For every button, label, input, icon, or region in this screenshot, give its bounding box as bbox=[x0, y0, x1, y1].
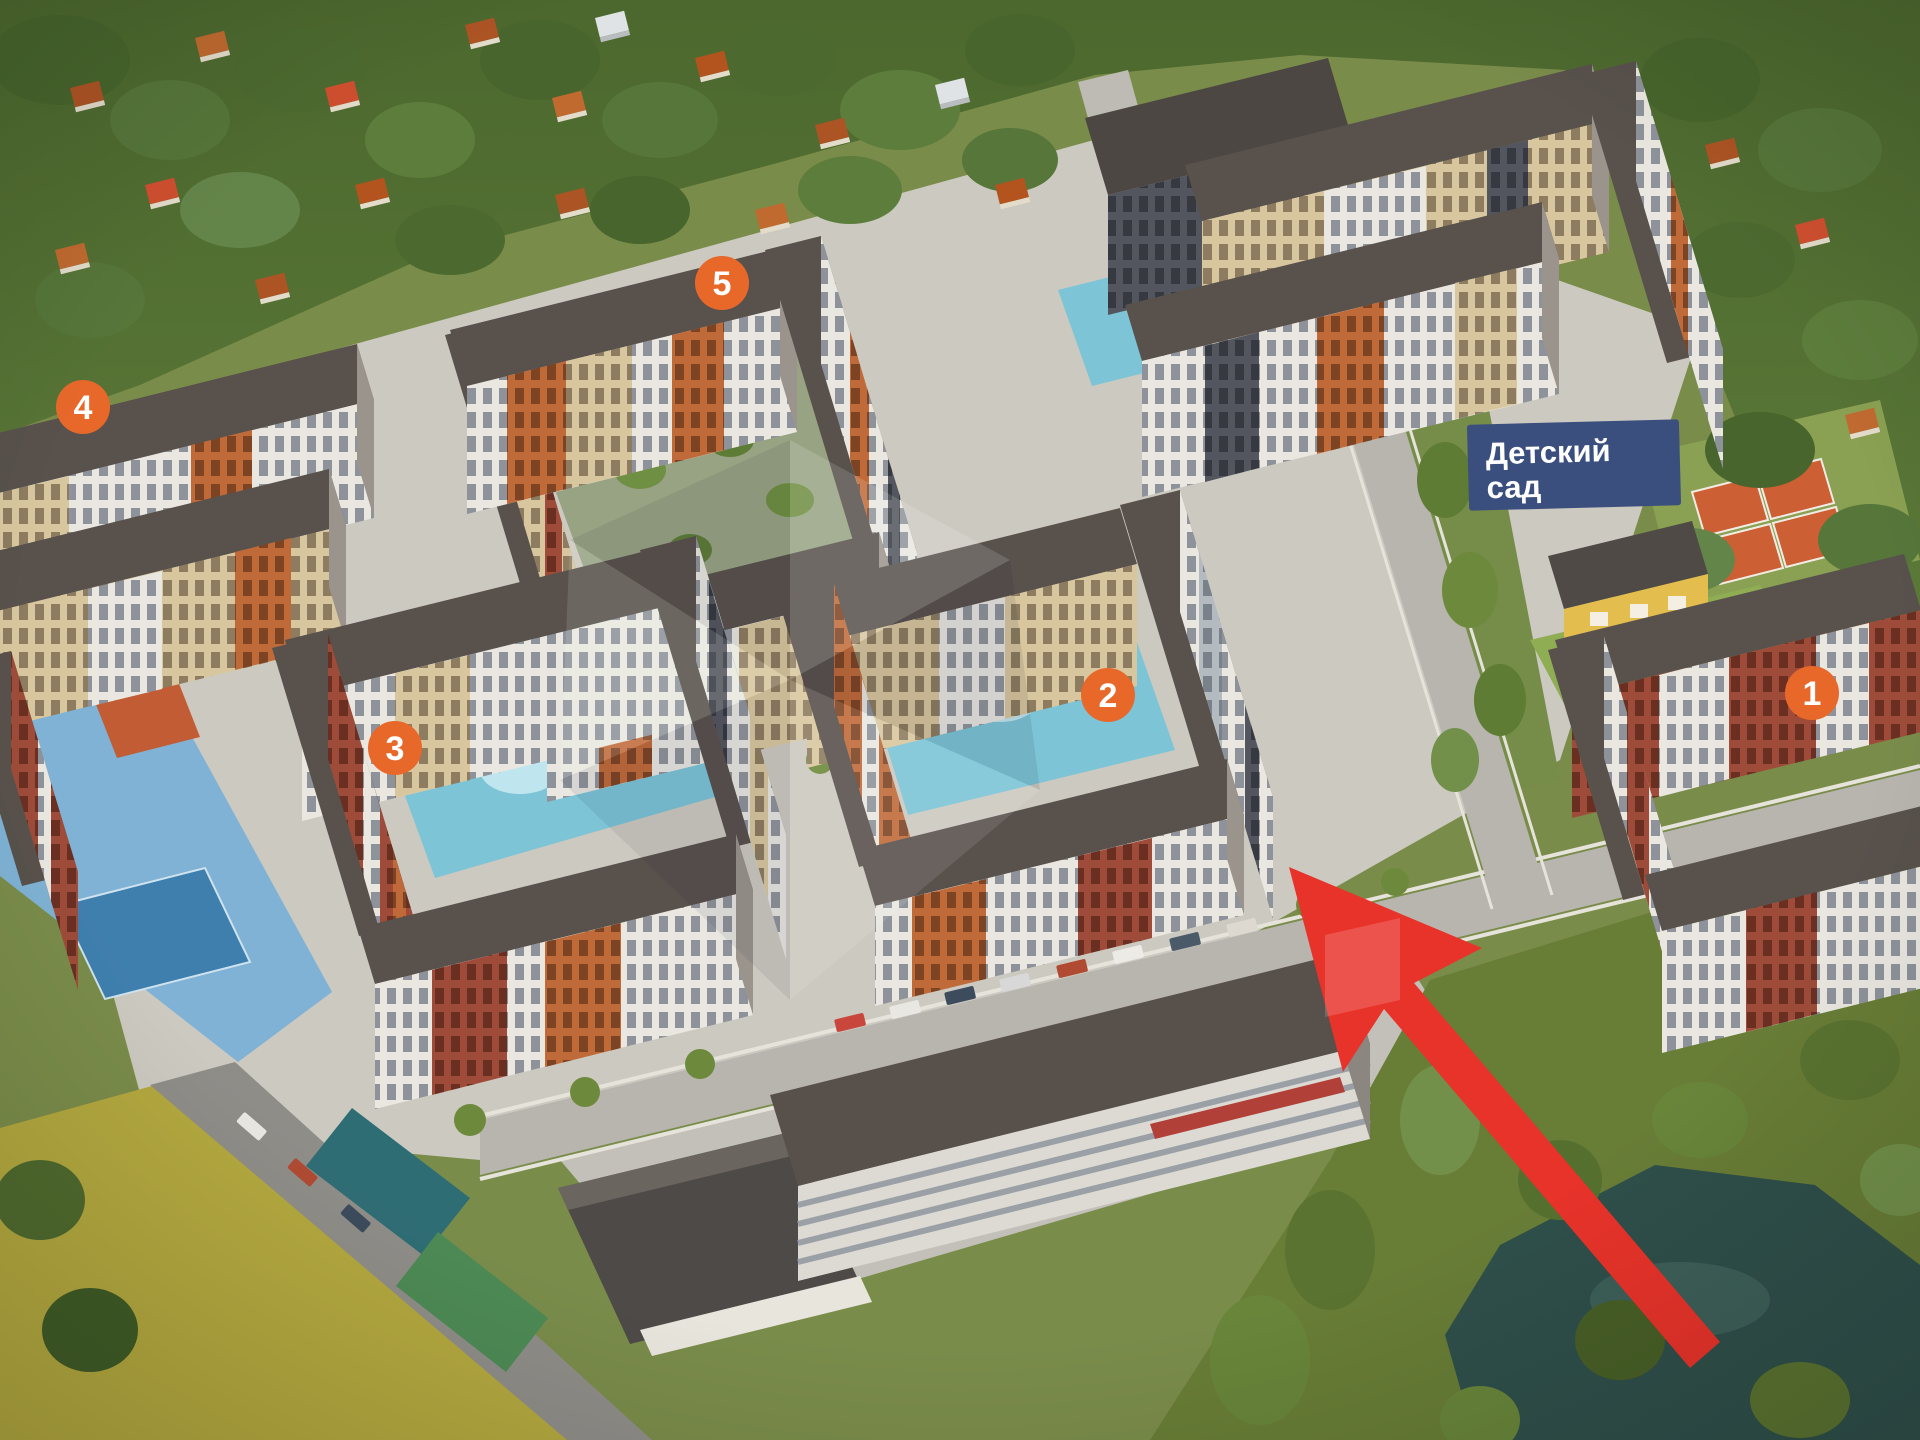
screenshot-root: Детский сад 4 5 3 2 1 bbox=[0, 0, 1920, 1440]
masterplan-render: Детский сад 4 5 3 2 1 bbox=[0, 0, 1920, 1440]
photo-vignette bbox=[0, 0, 1920, 1440]
